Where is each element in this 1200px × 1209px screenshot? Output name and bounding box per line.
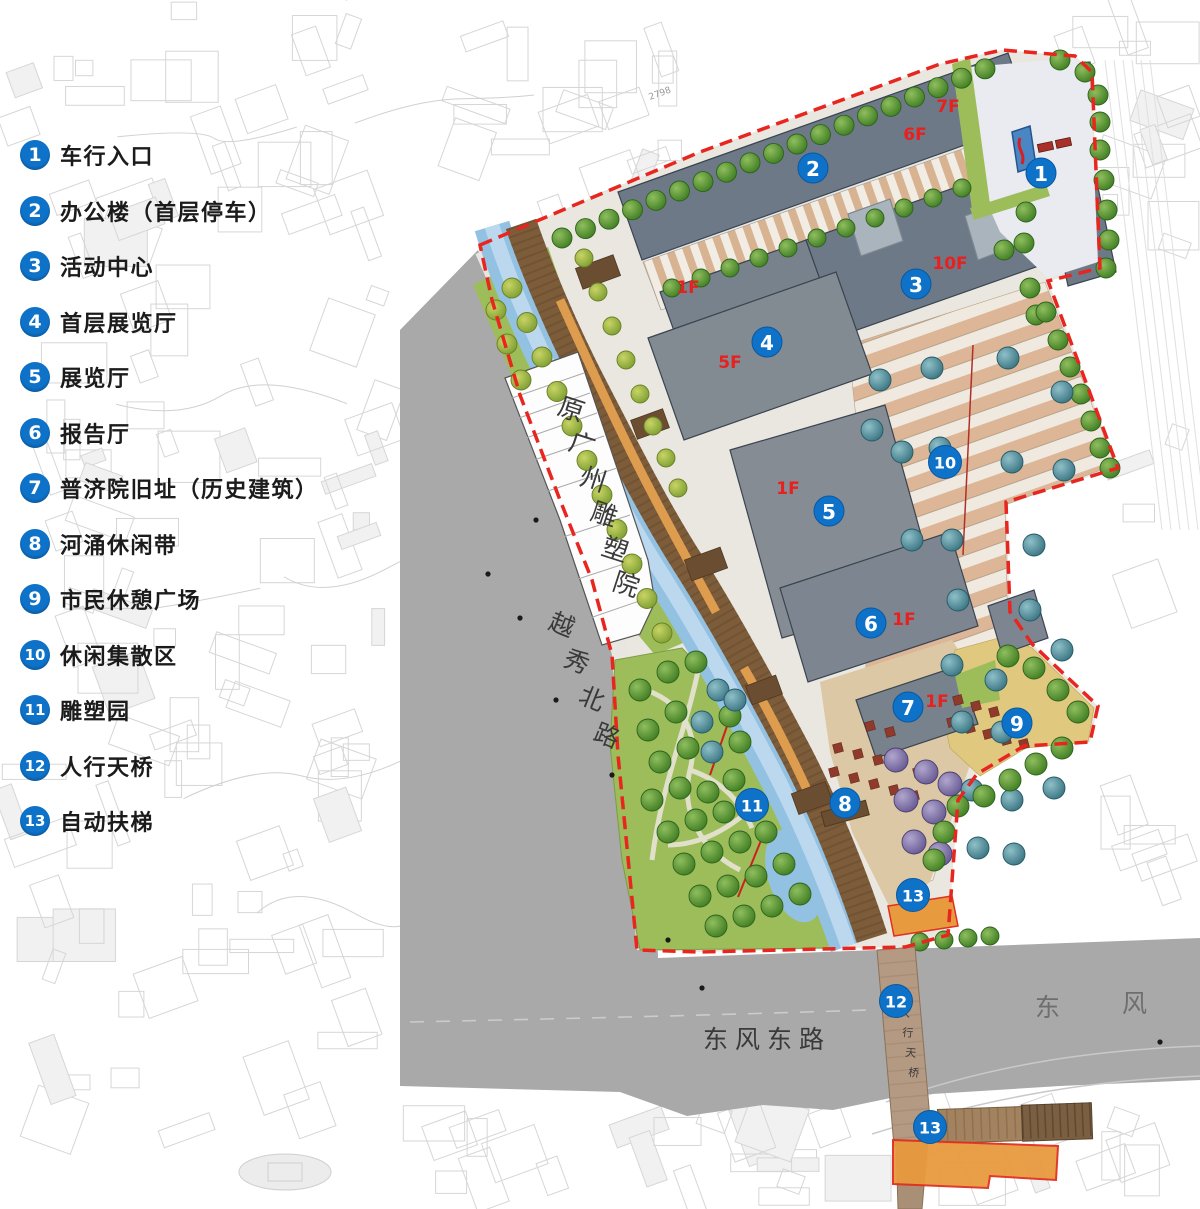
tree-icon <box>787 134 807 154</box>
map-marker-number: 4 <box>760 331 774 355</box>
tree-icon <box>761 895 783 917</box>
tree-icon <box>657 661 679 683</box>
tree-icon <box>764 143 784 163</box>
label-dongfeng-east-road: 东风东路 <box>703 1025 831 1054</box>
legend-item: 8河涌休闲带 <box>20 529 319 559</box>
survey-dot <box>485 571 490 576</box>
tree-icon <box>967 837 989 859</box>
table-icon <box>872 754 883 765</box>
tree-icon <box>938 772 962 796</box>
legend-item-number: 5 <box>20 362 50 392</box>
tree-icon <box>1048 330 1068 350</box>
map-marker-number: 9 <box>1010 712 1024 736</box>
legend-item-number: 9 <box>20 584 50 614</box>
tree-icon <box>1023 534 1045 556</box>
tree-icon <box>1053 459 1075 481</box>
tree-icon <box>811 125 831 145</box>
tree-icon <box>641 789 663 811</box>
tree-icon <box>693 172 713 192</box>
legend-item-label: 市民休憩广场 <box>60 583 201 615</box>
tree-icon <box>1043 777 1065 799</box>
tree-icon <box>552 228 572 248</box>
legend-item-label: 休闲集散区 <box>60 639 178 671</box>
legend-item-number: 2 <box>20 196 50 226</box>
legend-item-number: 13 <box>20 806 50 836</box>
label-dongfeng-wind: 风 <box>1122 989 1147 1018</box>
tree-icon <box>649 751 671 773</box>
map-marker-13: 13 <box>897 879 930 912</box>
map-marker-number: 5 <box>822 500 836 524</box>
tree-icon <box>669 777 691 799</box>
table-icon <box>884 726 895 737</box>
legend-item-number: 11 <box>20 695 50 725</box>
tree-icon <box>724 689 746 711</box>
floor-label: 7F <box>936 97 959 117</box>
legend-item: 6报告厅 <box>20 418 319 448</box>
map-marker-12: 12 <box>880 985 913 1018</box>
tree-icon <box>644 417 662 435</box>
tree-icon <box>837 219 855 237</box>
tree-icon <box>631 385 649 403</box>
legend-item-number: 3 <box>20 251 50 281</box>
tree-icon <box>1067 701 1089 723</box>
tree-icon <box>1003 843 1025 865</box>
tree-icon <box>1097 200 1117 220</box>
tree-icon <box>881 96 901 116</box>
table-icon <box>832 742 843 753</box>
label-pedestrian-bridge: 桥 <box>908 1066 920 1080</box>
legend-item: 13自动扶梯 <box>20 806 319 836</box>
tree-icon <box>755 821 777 843</box>
legend-item: 10休闲集散区 <box>20 640 319 670</box>
tree-icon <box>1016 202 1036 222</box>
legend-item-label: 报告厅 <box>60 417 131 449</box>
survey-dot <box>609 772 614 777</box>
tree-icon <box>685 809 707 831</box>
tree-icon <box>1047 679 1069 701</box>
tree-icon <box>1051 639 1073 661</box>
tree-icon <box>750 249 768 267</box>
map-marker-number: 8 <box>838 792 852 816</box>
legend-item-label: 活动中心 <box>60 250 154 282</box>
tree-icon <box>646 190 666 210</box>
legend: 1车行入口2办公楼（首层停车）3活动中心4首层展览厅5展览厅6报告厅7普济院旧址… <box>20 140 319 862</box>
map-marker-6: 6 <box>856 608 886 638</box>
tree-icon <box>717 875 739 897</box>
legend-item: 1车行入口 <box>20 140 319 170</box>
map-marker-number: 7 <box>901 696 915 720</box>
tree-icon <box>697 781 719 803</box>
tree-icon <box>637 719 659 741</box>
map-marker-9: 9 <box>1002 708 1032 738</box>
legend-item-label: 展览厅 <box>60 361 131 393</box>
table-icon <box>988 706 999 717</box>
tree-icon <box>861 419 883 441</box>
tree-icon <box>685 651 707 673</box>
legend-item: 12人行天桥 <box>20 751 319 781</box>
floor-label: 6F <box>903 125 926 145</box>
tree-icon <box>1071 384 1091 404</box>
tree-icon <box>1036 302 1056 322</box>
tree-icon <box>1025 753 1047 775</box>
tree-icon <box>502 278 522 298</box>
tree-icon <box>973 785 995 807</box>
map-marker-4: 4 <box>752 327 782 357</box>
tree-icon <box>902 830 926 854</box>
map-marker-2: 2 <box>798 153 828 183</box>
tree-icon <box>629 679 651 701</box>
tree-icon <box>669 479 687 497</box>
tree-icon <box>959 929 977 947</box>
tree-icon <box>884 748 908 772</box>
page: { "legend": { "items": [ {"num":"1","lab… <box>0 0 1200 1209</box>
tree-icon <box>941 654 963 676</box>
map-marker-7: 7 <box>893 692 923 722</box>
table-icon <box>852 748 863 759</box>
floor-label: 1F <box>776 479 799 499</box>
floor-label: 1F <box>925 692 948 712</box>
tree-icon <box>985 669 1007 691</box>
tree-icon <box>999 769 1021 791</box>
label-pedestrian-bridge: 行 <box>902 1026 914 1040</box>
legend-item-number: 7 <box>20 473 50 503</box>
tree-icon <box>729 831 751 853</box>
tree-icon <box>941 529 963 551</box>
tree-icon <box>1019 599 1041 621</box>
tree-icon <box>657 449 675 467</box>
table-icon <box>848 772 859 783</box>
legend-item-label: 首层展览厅 <box>60 306 178 338</box>
legend-item: 11雕塑园 <box>20 695 319 725</box>
tree-icon <box>935 931 953 949</box>
legend-item-label: 办公楼（首层停车） <box>60 195 272 227</box>
survey-dot <box>1157 1039 1162 1044</box>
tree-icon <box>517 313 537 333</box>
tree-icon <box>576 219 596 239</box>
map-marker-3: 3 <box>901 269 931 299</box>
tree-icon <box>705 915 727 937</box>
tree-icon <box>603 317 621 335</box>
tree-icon <box>717 162 737 182</box>
survey-dot <box>665 937 670 942</box>
legend-item: 7普济院旧址（历史建筑） <box>20 473 319 503</box>
map-marker-number: 12 <box>885 993 907 1012</box>
tree-icon <box>617 351 635 369</box>
legend-item-label: 人行天桥 <box>60 750 154 782</box>
tree-icon <box>729 731 751 753</box>
tree-icon <box>895 199 913 217</box>
tree-icon <box>952 68 972 88</box>
tree-icon <box>665 701 687 723</box>
tree-icon <box>923 849 945 871</box>
tree-icon <box>589 283 607 301</box>
tree-icon <box>808 229 826 247</box>
legend-item: 5展览厅 <box>20 362 319 392</box>
map-marker-5: 5 <box>814 496 844 526</box>
legend-item-label: 普济院旧址（历史建筑） <box>60 472 319 504</box>
tree-icon <box>834 115 854 135</box>
map-marker-number: 10 <box>934 454 956 473</box>
tree-icon <box>1090 438 1110 458</box>
legend-item-number: 10 <box>20 640 50 670</box>
tree-icon <box>532 347 552 367</box>
map-marker-8: 8 <box>830 788 860 818</box>
tree-icon <box>701 741 723 763</box>
walkway <box>937 1107 1022 1144</box>
map-marker-1: 1 <box>1026 158 1056 188</box>
tree-icon <box>928 78 948 98</box>
tree-icon <box>922 800 946 824</box>
tree-icon <box>997 347 1019 369</box>
map-marker-number: 3 <box>909 273 923 297</box>
tree-icon <box>994 240 1014 260</box>
tree-icon <box>981 927 999 945</box>
tree-icon <box>905 87 925 107</box>
tree-icon <box>901 529 923 551</box>
survey-dot <box>517 615 522 620</box>
tree-icon <box>623 200 643 220</box>
table-icon <box>970 700 981 711</box>
table-icon <box>828 766 839 777</box>
table-icon <box>952 694 963 705</box>
tree-icon <box>1020 278 1040 298</box>
tree-icon <box>599 209 619 229</box>
floor-label: 1F <box>892 610 915 630</box>
tree-icon <box>745 865 767 887</box>
tree-icon <box>691 711 713 733</box>
legend-item: 4首层展览厅 <box>20 307 319 337</box>
legend-item-number: 4 <box>20 307 50 337</box>
tree-icon <box>894 788 918 812</box>
legend-item-number: 12 <box>20 751 50 781</box>
tree-icon <box>677 737 699 759</box>
map-marker-number: 13 <box>902 887 924 906</box>
tree-icon <box>869 369 891 391</box>
tree-icon <box>1001 789 1023 811</box>
map-marker-number: 1 <box>1034 162 1048 186</box>
tree-icon <box>1001 451 1023 473</box>
tree-icon <box>858 106 878 126</box>
tree-icon <box>652 623 672 643</box>
legend-item-number: 8 <box>20 529 50 559</box>
tree-icon <box>701 841 723 863</box>
tree-icon <box>779 239 797 257</box>
tree-icon <box>713 801 735 823</box>
tree-icon <box>657 821 679 843</box>
tree-icon <box>723 769 745 791</box>
tree-icon <box>947 589 969 611</box>
map-marker-11: 11 <box>736 789 769 822</box>
legend-item-label: 自动扶梯 <box>60 805 154 837</box>
tree-icon <box>497 334 517 354</box>
tree-icon <box>866 209 884 227</box>
legend-item-label: 河涌休闲带 <box>60 528 178 560</box>
tree-icon <box>975 59 995 79</box>
table-icon <box>864 720 875 731</box>
tree-icon <box>733 905 755 927</box>
tree-icon <box>924 189 942 207</box>
tree-icon <box>1051 381 1073 403</box>
survey-dot <box>533 517 538 522</box>
legend-item: 2办公楼（首层停车） <box>20 196 319 226</box>
tree-icon <box>689 885 711 907</box>
tree-icon <box>921 357 943 379</box>
tree-icon <box>637 589 657 609</box>
tree-icon <box>773 853 795 875</box>
floor-label: 1F <box>676 278 699 298</box>
tree-icon <box>575 249 593 267</box>
tree-icon <box>670 181 690 201</box>
survey-dot <box>699 985 704 990</box>
tree-icon <box>673 853 695 875</box>
tree-icon <box>953 179 971 197</box>
map-marker-13: 13 <box>914 1111 947 1144</box>
floor-label: 10F <box>932 254 967 274</box>
tree-icon <box>1014 233 1034 253</box>
label-pedestrian-bridge: 天 <box>905 1046 917 1060</box>
tree-icon <box>740 153 760 173</box>
label-dongfeng-east: 东 <box>1035 993 1060 1022</box>
legend-item-number: 1 <box>20 140 50 170</box>
legend-item-number: 6 <box>20 418 50 448</box>
legend-item: 9市民休憩广场 <box>20 584 319 614</box>
legend-item-label: 车行入口 <box>60 139 154 171</box>
legend-item-label: 雕塑园 <box>60 694 131 726</box>
tree-icon <box>1023 657 1045 679</box>
tree-icon <box>1090 140 1110 160</box>
tree-icon <box>1099 230 1119 250</box>
map-marker-number: 11 <box>741 797 763 816</box>
tree-icon <box>1051 737 1073 759</box>
tree-icon <box>789 883 811 905</box>
legend-item: 3活动中心 <box>20 251 319 281</box>
map-marker-number: 2 <box>806 157 820 181</box>
floor-label: 5F <box>718 353 741 373</box>
tree-icon <box>997 645 1019 667</box>
survey-dot <box>553 697 558 702</box>
table-icon <box>868 778 879 789</box>
map-marker-number: 6 <box>864 612 878 636</box>
map-marker-10: 10 <box>929 446 962 479</box>
tree-icon <box>933 821 955 843</box>
map-marker-number: 13 <box>919 1119 941 1138</box>
tree-icon <box>914 760 938 784</box>
tree-icon <box>721 259 739 277</box>
tree-icon <box>951 711 973 733</box>
tree-icon <box>891 441 913 463</box>
